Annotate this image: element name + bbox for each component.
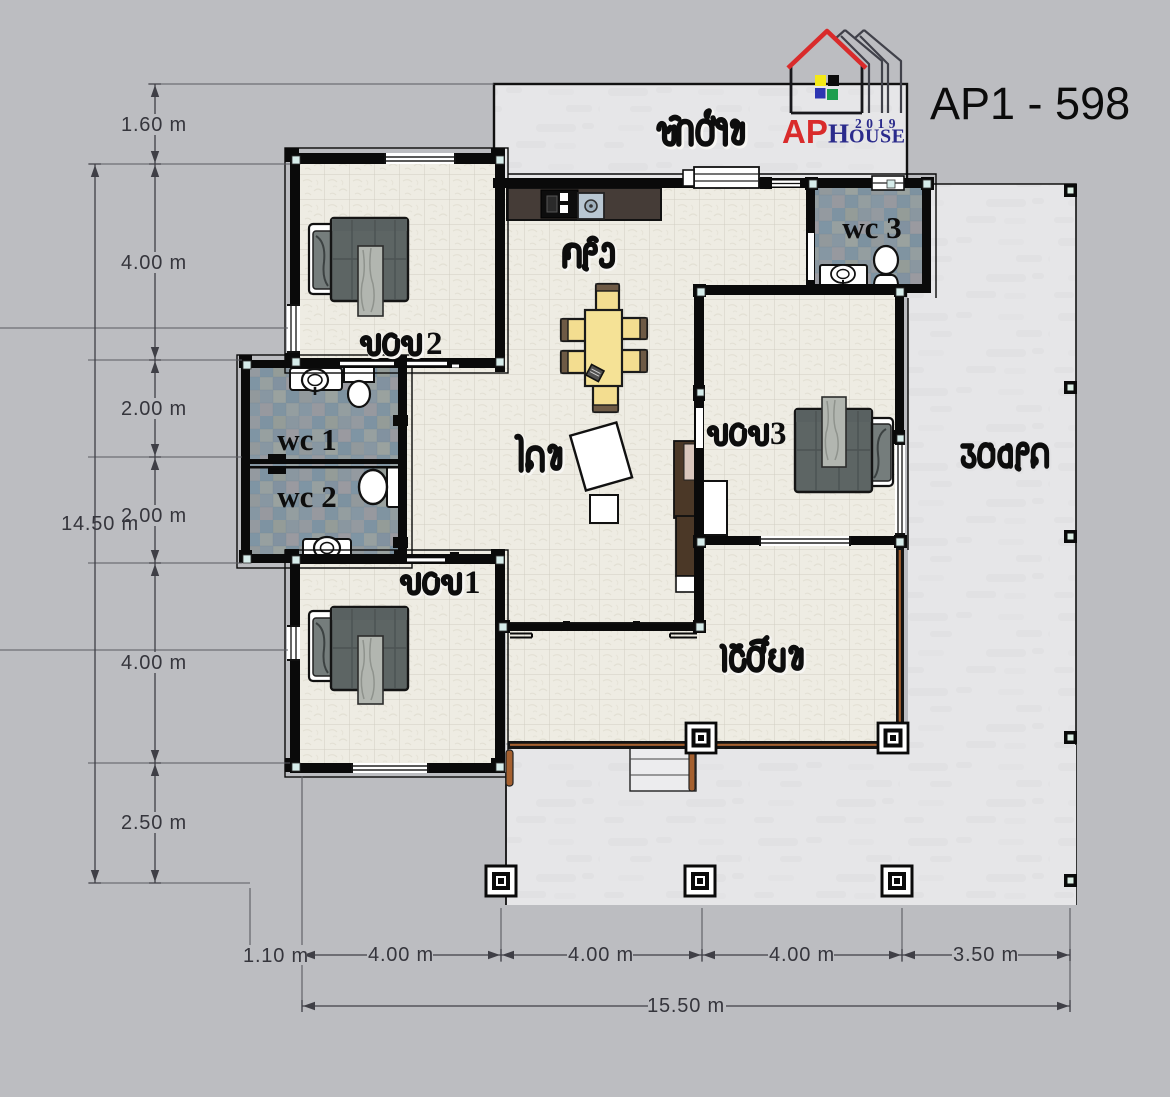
svg-text:H: H <box>828 119 849 149</box>
svg-text:4.00 m: 4.00 m <box>121 652 187 674</box>
svg-text:2.50 m: 2.50 m <box>121 812 187 834</box>
svg-text:AP: AP <box>782 113 828 150</box>
svg-text:2: 2 <box>426 326 443 362</box>
svg-text:1.10 m: 1.10 m <box>243 945 309 967</box>
svg-text:2019: 2019 <box>855 116 900 131</box>
svg-text:1: 1 <box>464 565 481 601</box>
svg-text:4.00 m: 4.00 m <box>121 252 187 274</box>
svg-text:3: 3 <box>770 416 787 452</box>
svg-text:15.50 m: 15.50 m <box>647 995 725 1017</box>
svg-text:wc 3: wc 3 <box>842 210 901 245</box>
svg-text:4.00 m: 4.00 m <box>368 944 434 966</box>
svg-text:2.00 m: 2.00 m <box>121 398 187 420</box>
svg-text:4.00 m: 4.00 m <box>769 944 835 966</box>
svg-text:wc 2: wc 2 <box>277 479 336 514</box>
svg-text:3.50 m: 3.50 m <box>953 944 1019 966</box>
svg-text:1.60 m: 1.60 m <box>121 114 187 136</box>
svg-text:4.00 m: 4.00 m <box>568 944 634 966</box>
svg-text:wc 1: wc 1 <box>277 422 336 457</box>
svg-text:AP1 - 598: AP1 - 598 <box>930 78 1130 129</box>
svg-text:14.50 m: 14.50 m <box>61 513 139 535</box>
